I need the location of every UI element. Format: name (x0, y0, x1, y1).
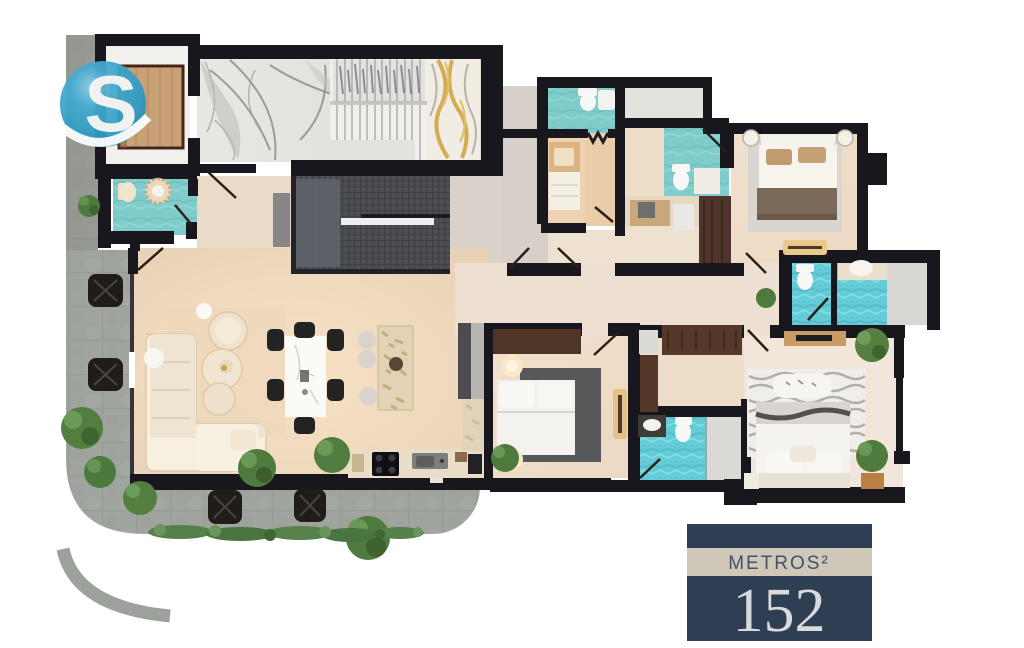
svg-text:METROS²: METROS² (728, 553, 830, 574)
svg-text:152: 152 (733, 577, 826, 645)
svg-text:S: S (84, 59, 137, 148)
